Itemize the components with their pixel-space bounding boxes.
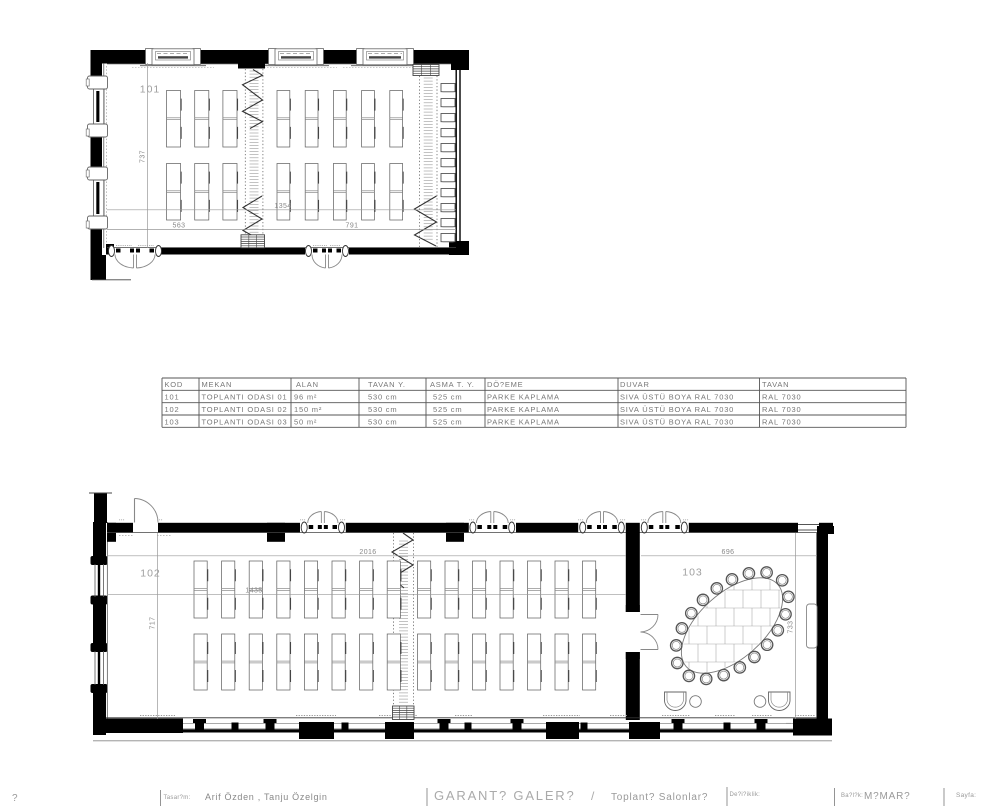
svg-text:ALAN: ALAN [296, 380, 319, 389]
svg-text:150 m²: 150 m² [294, 405, 322, 414]
svg-text:101: 101 [140, 84, 161, 96]
svg-text:103: 103 [682, 567, 703, 579]
svg-text:1354: 1354 [274, 203, 291, 210]
svg-text:DÖ?EME: DÖ?EME [487, 380, 523, 389]
svg-text:PARKE KAPLAMA: PARKE KAPLAMA [487, 405, 560, 414]
svg-text:Arif Özden , Tanju Özelgin: Arif Özden , Tanju Özelgin [205, 792, 328, 802]
svg-text:791: 791 [346, 222, 359, 229]
svg-text:SIVA ÜSTÜ BOYA RAL 7030: SIVA ÜSTÜ BOYA RAL 7030 [620, 405, 734, 414]
svg-text:TAVAN: TAVAN [762, 380, 789, 389]
svg-text:530 cm: 530 cm [368, 417, 397, 426]
svg-text:TAVAN Y.: TAVAN Y. [368, 380, 406, 389]
svg-text:SIVA ÜSTÜ BOYA RAL 7030: SIVA ÜSTÜ BOYA RAL 7030 [620, 393, 734, 402]
svg-text:DUVAR: DUVAR [620, 380, 650, 389]
svg-text:RAL 7030: RAL 7030 [762, 417, 801, 426]
svg-text:525 cm: 525 cm [433, 405, 462, 414]
svg-text:102: 102 [165, 405, 180, 414]
svg-text:SIVA ÜSTÜ BOYA RAL 7030: SIVA ÜSTÜ BOYA RAL 7030 [620, 417, 734, 426]
svg-text:TOPLANTI ODASI 01: TOPLANTI ODASI 01 [202, 393, 288, 402]
svg-text:733: 733 [788, 621, 795, 634]
svg-text:Ba?l?k:: Ba?l?k: [841, 793, 863, 799]
svg-text:PARKE KAPLAMA: PARKE KAPLAMA [487, 417, 560, 426]
svg-text:Tasar?m:: Tasar?m: [164, 795, 191, 801]
svg-text:Toplant? Salonlar?: Toplant? Salonlar? [611, 792, 708, 803]
svg-text:1435: 1435 [245, 588, 262, 595]
svg-text:GARANT? GALER?: GARANT? GALER? [434, 788, 576, 803]
svg-text:530 cm: 530 cm [368, 393, 397, 402]
svg-text:MEKAN: MEKAN [202, 380, 233, 389]
svg-text:TOPLANTI ODASI 03: TOPLANTI ODASI 03 [202, 417, 288, 426]
svg-text:De?i?iklik:: De?i?iklik: [730, 792, 761, 798]
svg-text:101: 101 [165, 393, 180, 402]
svg-text:696: 696 [722, 549, 735, 556]
svg-text:RAL 7030: RAL 7030 [762, 405, 801, 414]
svg-text:717: 717 [150, 617, 157, 630]
svg-text:?: ? [12, 793, 18, 804]
svg-text:96 m²: 96 m² [294, 393, 317, 402]
svg-text:737: 737 [140, 150, 147, 163]
svg-text:RAL 7030: RAL 7030 [762, 393, 801, 402]
svg-text:Sayfa:: Sayfa: [956, 792, 976, 799]
svg-text:103: 103 [165, 417, 180, 426]
svg-text:563: 563 [173, 222, 186, 229]
svg-text:50 m²: 50 m² [294, 417, 317, 426]
svg-text:525 cm: 525 cm [433, 417, 462, 426]
svg-text:102: 102 [140, 568, 161, 580]
svg-text:M?MAR?: M?MAR? [864, 791, 910, 802]
svg-text:2016: 2016 [359, 549, 376, 556]
svg-text:ASMA T. Y.: ASMA T. Y. [430, 380, 475, 389]
svg-text:530 cm: 530 cm [368, 405, 397, 414]
svg-text:525 cm: 525 cm [433, 393, 462, 402]
svg-text:TOPLANTI ODASI 02: TOPLANTI ODASI 02 [202, 405, 288, 414]
svg-text:KOD: KOD [165, 380, 184, 389]
svg-text:PARKE KAPLAMA: PARKE KAPLAMA [487, 393, 560, 402]
